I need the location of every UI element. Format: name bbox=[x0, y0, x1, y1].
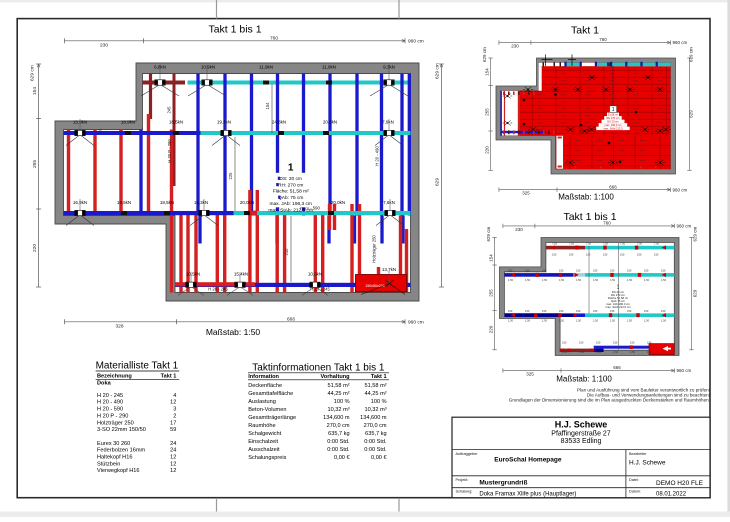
svg-text:Beton-Volumen: Beton-Volumen bbox=[248, 407, 286, 413]
svg-text:24: 24 bbox=[170, 441, 176, 447]
svg-text:Maßstab: 1:100: Maßstab: 1:100 bbox=[556, 375, 612, 384]
svg-text:1,50: 1,50 bbox=[627, 318, 633, 322]
svg-text:0,00 €: 0,00 € bbox=[371, 455, 387, 461]
svg-text:1,50: 1,50 bbox=[644, 318, 650, 322]
svg-text:max. StAb 212,5: max. StAb 212,5 bbox=[603, 126, 623, 130]
svg-text:10,32 m³: 10,32 m³ bbox=[328, 407, 350, 413]
svg-text:7,50: 7,50 bbox=[654, 241, 660, 245]
svg-text:154: 154 bbox=[265, 102, 270, 110]
svg-text:19,3kN: 19,3kN bbox=[194, 200, 208, 205]
svg-text:629 cm: 629 cm bbox=[30, 65, 36, 81]
svg-text:7,6kN: 7,6kN bbox=[383, 200, 395, 205]
svg-text:11,9kN: 11,9kN bbox=[322, 65, 336, 70]
svg-text:Taktinformationen Takt 1 bis: Taktinformationen Takt 1 bis 1 bbox=[252, 363, 385, 374]
svg-text:RH: 270 cm: RH: 270 cm bbox=[278, 182, 303, 188]
svg-text:Maßstab: 1:100: Maßstab: 1:100 bbox=[558, 193, 614, 202]
svg-text:RH 270 cm: RH 270 cm bbox=[606, 116, 619, 120]
svg-text:H.J. Schewe: H.J. Schewe bbox=[629, 460, 666, 467]
svg-text:255: 255 bbox=[32, 160, 38, 168]
svg-text:960 cm: 960 cm bbox=[408, 39, 424, 45]
svg-text:1,50: 1,50 bbox=[508, 278, 514, 282]
svg-text:1,50: 1,50 bbox=[576, 278, 582, 282]
svg-text:Einschalzeit: Einschalzeit bbox=[248, 439, 278, 445]
svg-text:DS: 20 cm: DS: 20 cm bbox=[279, 176, 301, 182]
svg-text:Gesamtträgerlänge: Gesamtträgerlänge bbox=[248, 415, 296, 421]
svg-text:DS 20 cm: DS 20 cm bbox=[607, 119, 618, 123]
svg-text:150: 150 bbox=[654, 253, 659, 257]
svg-text:H 20 P - 290: H 20 P - 290 bbox=[167, 139, 172, 163]
svg-text:150: 150 bbox=[586, 253, 591, 257]
svg-text:10,5kN: 10,5kN bbox=[186, 272, 200, 277]
svg-text:134,600 m: 134,600 m bbox=[323, 415, 350, 421]
svg-text:Bearbeiter: Bearbeiter bbox=[629, 452, 647, 456]
svg-text:150: 150 bbox=[613, 340, 618, 344]
svg-text:0:00 Std.: 0:00 Std. bbox=[364, 439, 387, 445]
svg-text:960 cm: 960 cm bbox=[673, 187, 688, 192]
svg-text:1,50: 1,50 bbox=[542, 318, 548, 322]
svg-text:1,50: 1,50 bbox=[647, 350, 653, 354]
svg-text:629 cm: 629 cm bbox=[435, 63, 441, 79]
svg-text:13,7kN: 13,7kN bbox=[382, 267, 396, 272]
svg-text:1,50: 1,50 bbox=[610, 318, 616, 322]
svg-text:1,50: 1,50 bbox=[593, 278, 599, 282]
svg-text:7,50: 7,50 bbox=[620, 241, 626, 245]
svg-text:255: 255 bbox=[484, 108, 489, 116]
svg-text:150: 150 bbox=[647, 340, 652, 344]
svg-text:max. 196,3 cm: max. 196,3 cm bbox=[604, 123, 621, 127]
svg-text:Grundlagen der Dimensionierung: Grundlagen der Dimensionierung sind die … bbox=[509, 398, 710, 403]
svg-text:150: 150 bbox=[569, 253, 574, 257]
svg-text:150: 150 bbox=[593, 269, 598, 273]
svg-text:18,5kN: 18,5kN bbox=[169, 120, 183, 125]
svg-text:83533 Edling: 83533 Edling bbox=[561, 438, 602, 445]
svg-text:666: 666 bbox=[287, 316, 295, 322]
svg-text:150: 150 bbox=[661, 309, 666, 313]
svg-text:629 cm: 629 cm bbox=[486, 226, 491, 241]
svg-text:Takt 1: Takt 1 bbox=[371, 374, 387, 380]
svg-text:629 cm: 629 cm bbox=[693, 226, 698, 241]
svg-text:Haltekopf H16: Haltekopf H16 bbox=[97, 455, 132, 461]
svg-text:10,32 m³: 10,32 m³ bbox=[365, 407, 387, 413]
svg-text:51,58 m²: 51,58 m² bbox=[328, 383, 350, 389]
svg-text:1,50: 1,50 bbox=[579, 350, 585, 354]
svg-text:150: 150 bbox=[525, 309, 530, 313]
svg-text:0,00 €: 0,00 € bbox=[334, 455, 350, 461]
svg-text:Takt 1 bis 1: Takt 1 bis 1 bbox=[208, 24, 261, 36]
svg-text:Takt 1: Takt 1 bbox=[571, 25, 599, 37]
svg-text:7,50: 7,50 bbox=[552, 241, 558, 245]
svg-text:1,50: 1,50 bbox=[630, 350, 636, 354]
svg-text:44,25 m²: 44,25 m² bbox=[328, 391, 350, 397]
svg-text:666: 666 bbox=[613, 365, 621, 370]
svg-text:4: 4 bbox=[173, 393, 176, 399]
svg-text:20: 20 bbox=[98, 128, 103, 133]
svg-text:1,50: 1,50 bbox=[610, 278, 616, 282]
svg-text:7,9kN: 7,9kN bbox=[382, 120, 394, 125]
svg-text:150: 150 bbox=[562, 340, 567, 344]
svg-text:24,8kN: 24,8kN bbox=[272, 120, 286, 125]
svg-text:150: 150 bbox=[508, 309, 513, 313]
svg-text:12: 12 bbox=[170, 400, 176, 406]
svg-text:325: 325 bbox=[522, 191, 530, 196]
svg-text:0:00 Std.: 0:00 Std. bbox=[364, 447, 387, 453]
svg-text:150: 150 bbox=[637, 253, 642, 257]
svg-text:150: 150 bbox=[579, 340, 584, 344]
svg-text:59: 59 bbox=[170, 427, 176, 433]
svg-text:760: 760 bbox=[270, 35, 278, 41]
svg-text:1,50: 1,50 bbox=[525, 278, 531, 282]
svg-text:19,3kN: 19,3kN bbox=[217, 120, 231, 125]
svg-text:1: 1 bbox=[288, 163, 294, 174]
svg-text:154: 154 bbox=[484, 68, 489, 76]
svg-text:Schalgewicht: Schalgewicht bbox=[248, 431, 281, 437]
svg-text:1,50: 1,50 bbox=[644, 278, 650, 282]
svg-text:08.01.2022: 08.01.2022 bbox=[656, 492, 687, 498]
svg-text:1,50: 1,50 bbox=[661, 278, 667, 282]
svg-text:760: 760 bbox=[603, 221, 611, 226]
svg-text:12: 12 bbox=[170, 455, 176, 461]
svg-text:44,25 m²: 44,25 m² bbox=[365, 391, 387, 397]
svg-text:1: 1 bbox=[612, 107, 615, 113]
svg-text:220: 220 bbox=[484, 146, 489, 154]
svg-text:1,50: 1,50 bbox=[525, 318, 531, 322]
svg-text:1,50: 1,50 bbox=[542, 278, 548, 282]
svg-text:150: 150 bbox=[576, 309, 581, 313]
svg-text:Maßstab: 1:50: Maßstab: 1:50 bbox=[206, 327, 261, 337]
svg-text:270,0 cm: 270,0 cm bbox=[327, 423, 350, 429]
svg-text:635,7 kg: 635,7 kg bbox=[365, 431, 386, 437]
svg-text:245: 245 bbox=[167, 106, 172, 114]
svg-text:1,50: 1,50 bbox=[593, 318, 599, 322]
svg-text:max. JAb: 196,3 cm: max. JAb: 196,3 cm bbox=[270, 201, 312, 207]
svg-text:150: 150 bbox=[559, 309, 564, 313]
svg-text:Datei:: Datei: bbox=[629, 478, 639, 482]
svg-text:230: 230 bbox=[100, 43, 108, 49]
svg-text:960 cm: 960 cm bbox=[677, 368, 692, 373]
svg-text:Raumhöhe: Raumhöhe bbox=[248, 423, 275, 429]
svg-text:10,9kN: 10,9kN bbox=[201, 65, 215, 70]
svg-text:635,7 kg: 635,7 kg bbox=[328, 431, 349, 437]
svg-text:629: 629 bbox=[435, 178, 441, 186]
svg-text:H 20 P - 290: H 20 P - 290 bbox=[97, 413, 128, 419]
svg-text:629: 629 bbox=[689, 110, 694, 118]
svg-text:Auftraggeber: Auftraggeber bbox=[456, 452, 479, 456]
svg-text:0:00 Std.: 0:00 Std. bbox=[327, 439, 350, 445]
svg-text:7,50: 7,50 bbox=[637, 241, 643, 245]
svg-text:H 20 - 490: H 20 - 490 bbox=[97, 400, 123, 406]
svg-text:Schalungspreis: Schalungspreis bbox=[248, 455, 286, 461]
svg-text:325: 325 bbox=[526, 372, 534, 377]
svg-text:12: 12 bbox=[170, 468, 176, 474]
svg-text:150: 150 bbox=[627, 269, 632, 273]
svg-text:150: 150 bbox=[596, 340, 601, 344]
svg-text:Stützbein: Stützbein bbox=[97, 461, 120, 467]
svg-text:1,50: 1,50 bbox=[661, 318, 667, 322]
svg-text:150: 150 bbox=[525, 269, 530, 273]
svg-text:100 %: 100 % bbox=[371, 399, 387, 405]
svg-text:7,50: 7,50 bbox=[603, 241, 609, 245]
svg-text:Holzträger 250: Holzträger 250 bbox=[371, 235, 376, 263]
svg-text:DEMO H20 FLE: DEMO H20 FLE bbox=[656, 480, 704, 487]
svg-text:150: 150 bbox=[620, 253, 625, 257]
svg-text:1,50: 1,50 bbox=[559, 318, 565, 322]
svg-text:220: 220 bbox=[32, 244, 38, 252]
svg-text:51,58 m²: 51,58 m² bbox=[608, 112, 618, 116]
svg-text:150: 150 bbox=[661, 269, 666, 273]
svg-text:960 cm: 960 cm bbox=[677, 224, 692, 229]
svg-text:Auslastung: Auslastung bbox=[248, 399, 276, 405]
svg-text:1,50: 1,50 bbox=[562, 350, 568, 354]
svg-text:18,9kN: 18,9kN bbox=[121, 120, 135, 125]
svg-text:20,0kN: 20,0kN bbox=[331, 200, 345, 205]
svg-text:2: 2 bbox=[173, 413, 176, 419]
svg-text:EuroSchal Homepage: EuroSchal Homepage bbox=[494, 457, 562, 464]
svg-text:760: 760 bbox=[599, 37, 607, 42]
svg-text:270,0 cm: 270,0 cm bbox=[364, 423, 387, 429]
svg-text:Vorhaltung: Vorhaltung bbox=[320, 374, 350, 380]
svg-text:Takt 1: Takt 1 bbox=[161, 373, 177, 379]
svg-text:210: 210 bbox=[284, 248, 289, 256]
svg-text:150: 150 bbox=[552, 253, 557, 257]
svg-text:150: 150 bbox=[542, 309, 547, 313]
svg-text:150: 150 bbox=[644, 309, 649, 313]
svg-text:Information: Information bbox=[248, 374, 279, 380]
svg-text:H 20 - 245: H 20 - 245 bbox=[208, 287, 228, 292]
svg-text:150: 150 bbox=[610, 309, 615, 313]
svg-text:Doka: Doka bbox=[97, 381, 112, 387]
svg-text:150: 150 bbox=[630, 340, 635, 344]
svg-text:960 cm: 960 cm bbox=[408, 320, 424, 326]
svg-text:150: 150 bbox=[508, 269, 513, 273]
svg-text:Ausschalzeit: Ausschalzeit bbox=[248, 447, 280, 453]
svg-text:150: 150 bbox=[603, 253, 608, 257]
svg-text:154: 154 bbox=[488, 254, 493, 262]
svg-text:H.J. Schewe: H.J. Schewe bbox=[555, 419, 608, 429]
svg-text:51,58 m²: 51,58 m² bbox=[365, 383, 387, 389]
svg-text:max. StAb 212,5 cm: max. StAb 212,5 cm bbox=[605, 305, 631, 309]
svg-text:150x50x200: 150x50x200 bbox=[365, 284, 385, 288]
svg-text:225: 225 bbox=[228, 172, 233, 180]
svg-text:Datum:: Datum: bbox=[629, 490, 641, 494]
svg-text:1,50: 1,50 bbox=[559, 278, 565, 282]
svg-text:220: 220 bbox=[488, 325, 493, 333]
svg-text:7,50: 7,50 bbox=[586, 241, 592, 245]
svg-text:Bezeichnung: Bezeichnung bbox=[97, 373, 132, 379]
svg-text:Pfaffingerstraße 27: Pfaffingerstraße 27 bbox=[551, 430, 611, 437]
svg-text:H 20 - 490: H 20 - 490 bbox=[375, 146, 380, 166]
svg-text:629 cm: 629 cm bbox=[689, 47, 694, 62]
svg-text:H 20 - 590: H 20 - 590 bbox=[97, 407, 123, 413]
svg-text:max. StAb: 212,5 cm: max. StAb: 212,5 cm bbox=[268, 208, 313, 214]
svg-text:150: 150 bbox=[576, 269, 581, 273]
svg-text:11,9kN: 11,9kN bbox=[259, 65, 273, 70]
svg-text:960 cm: 960 cm bbox=[673, 40, 688, 45]
svg-text:Deckenfläche: Deckenfläche bbox=[248, 383, 282, 389]
svg-text:150: 150 bbox=[593, 309, 598, 313]
svg-text:1,50: 1,50 bbox=[576, 318, 582, 322]
svg-text:1,50: 1,50 bbox=[613, 350, 619, 354]
svg-text:Holzträger 250: Holzträger 250 bbox=[97, 420, 134, 426]
svg-text:230: 230 bbox=[511, 44, 519, 49]
svg-text:15,4kN: 15,4kN bbox=[234, 272, 248, 277]
svg-text:20,0kN: 20,0kN bbox=[240, 200, 254, 205]
svg-text:QAb: 75 cm: QAb: 75 cm bbox=[278, 195, 303, 201]
svg-text:Materialliste Takt 1: Materialliste Takt 1 bbox=[96, 361, 179, 372]
svg-text:230: 230 bbox=[515, 227, 523, 232]
svg-text:Federbolzen 16mm: Federbolzen 16mm bbox=[97, 448, 146, 454]
svg-text:1,50: 1,50 bbox=[508, 318, 514, 322]
svg-text:0:00 Std.: 0:00 Std. bbox=[327, 447, 350, 453]
svg-text:Fläche: 51,58 m²: Fläche: 51,58 m² bbox=[273, 189, 309, 195]
svg-text:150: 150 bbox=[644, 269, 649, 273]
svg-text:134,600 m: 134,600 m bbox=[360, 415, 387, 421]
svg-text:150: 150 bbox=[610, 269, 615, 273]
svg-text:18,5kN: 18,5kN bbox=[160, 200, 174, 205]
svg-text:150: 150 bbox=[559, 269, 564, 273]
svg-text:666: 666 bbox=[609, 184, 617, 189]
svg-text:12: 12 bbox=[170, 461, 176, 467]
svg-text:Mustergrundriß: Mustergrundriß bbox=[479, 479, 527, 486]
svg-text:20,8kN: 20,8kN bbox=[323, 120, 337, 125]
svg-text:328: 328 bbox=[115, 324, 123, 330]
svg-text:1,50: 1,50 bbox=[596, 350, 602, 354]
svg-text:24: 24 bbox=[170, 448, 176, 454]
svg-text:Schalung:: Schalung: bbox=[456, 490, 473, 494]
svg-text:Gesamttafelfläche: Gesamttafelfläche bbox=[248, 391, 293, 397]
svg-text:Eurex 30 260: Eurex 30 260 bbox=[97, 441, 130, 447]
svg-text:7,50: 7,50 bbox=[569, 241, 575, 245]
svg-text:Doka Framax Xlife plus (Hauptl: Doka Framax Xlife plus (Hauptlager) bbox=[479, 491, 576, 497]
svg-text:17: 17 bbox=[170, 420, 176, 426]
svg-text:1,50: 1,50 bbox=[627, 278, 633, 282]
svg-text:3: 3 bbox=[173, 407, 176, 413]
svg-text:100 %: 100 % bbox=[334, 399, 350, 405]
svg-text:Projekt:: Projekt: bbox=[456, 478, 469, 482]
svg-text:H 20 - 245: H 20 - 245 bbox=[97, 393, 123, 399]
svg-text:154: 154 bbox=[32, 87, 38, 95]
svg-text:629 cm: 629 cm bbox=[482, 47, 487, 62]
svg-text:255: 255 bbox=[488, 289, 493, 297]
svg-text:150: 150 bbox=[627, 309, 632, 313]
svg-text:629: 629 bbox=[693, 289, 698, 297]
svg-text:150: 150 bbox=[542, 269, 547, 273]
svg-text:Vierwegkopf H16: Vierwegkopf H16 bbox=[97, 468, 140, 474]
svg-text:18,5kN: 18,5kN bbox=[117, 200, 131, 205]
svg-text:3-SO 22mm 150/50: 3-SO 22mm 150/50 bbox=[97, 427, 146, 433]
